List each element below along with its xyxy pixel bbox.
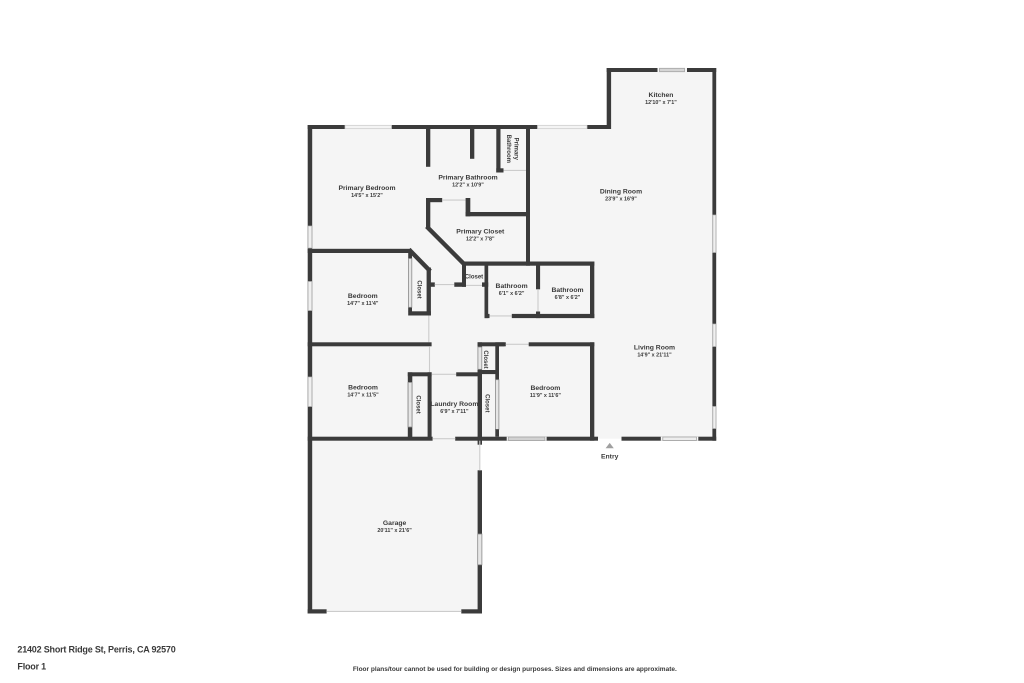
svg-text:Closet: Closet: [415, 395, 421, 413]
svg-text:Floor 1: Floor 1: [17, 661, 46, 671]
svg-text:Living Room: Living Room: [634, 345, 675, 352]
svg-text:Bathroom: Bathroom: [496, 283, 528, 290]
svg-text:Primary Bathroom: Primary Bathroom: [438, 175, 497, 182]
svg-text:20'11" x 21'6": 20'11" x 21'6": [377, 528, 412, 534]
svg-text:Bedroom: Bedroom: [348, 384, 378, 391]
svg-text:Floor plans/tour cannot be use: Floor plans/tour cannot be used for buil…: [353, 666, 677, 673]
svg-text:Bedroom: Bedroom: [348, 293, 378, 300]
svg-text:Bedroom: Bedroom: [530, 385, 560, 392]
svg-text:Entry: Entry: [601, 454, 619, 461]
svg-text:PrimaryBathroom: PrimaryBathroom: [505, 135, 518, 163]
svg-text:12'10" x 7'1": 12'10" x 7'1": [645, 100, 677, 106]
svg-text:Closet: Closet: [482, 350, 488, 368]
svg-text:12'2" x 10'9": 12'2" x 10'9": [452, 183, 484, 189]
svg-text:Kitchen: Kitchen: [649, 92, 674, 99]
svg-text:Closet: Closet: [483, 394, 489, 412]
svg-text:14'5" x 15'2": 14'5" x 15'2": [351, 193, 383, 199]
svg-text:14'7" x 11'4": 14'7" x 11'4": [347, 301, 379, 307]
svg-text:6'8" x 6'2": 6'8" x 6'2": [555, 295, 581, 301]
svg-text:14'7" x 11'5": 14'7" x 11'5": [347, 392, 379, 398]
svg-text:Closet: Closet: [465, 274, 483, 280]
svg-text:12'2" x 7'8": 12'2" x 7'8": [466, 237, 495, 243]
svg-text:6'1" x 6'2": 6'1" x 6'2": [499, 291, 525, 297]
svg-text:23'9" x 16'9": 23'9" x 16'9": [605, 196, 637, 202]
svg-text:Laundry Room: Laundry Room: [430, 401, 478, 408]
svg-text:Bathroom: Bathroom: [551, 287, 583, 294]
svg-text:Dining Room: Dining Room: [600, 188, 642, 195]
svg-text:Primary Closet: Primary Closet: [456, 229, 505, 236]
svg-text:Primary Bedroom: Primary Bedroom: [338, 185, 395, 192]
svg-text:Garage: Garage: [383, 520, 407, 527]
svg-text:21402 Short Ridge St, Perris,: 21402 Short Ridge St, Perris, CA 92570: [17, 644, 175, 654]
svg-text:Closet: Closet: [416, 280, 422, 298]
svg-text:11'9" x 11'6": 11'9" x 11'6": [530, 393, 562, 399]
svg-text:6'9" x 7'11": 6'9" x 7'11": [440, 409, 469, 415]
svg-text:14'9" x 21'11": 14'9" x 21'11": [637, 353, 672, 359]
